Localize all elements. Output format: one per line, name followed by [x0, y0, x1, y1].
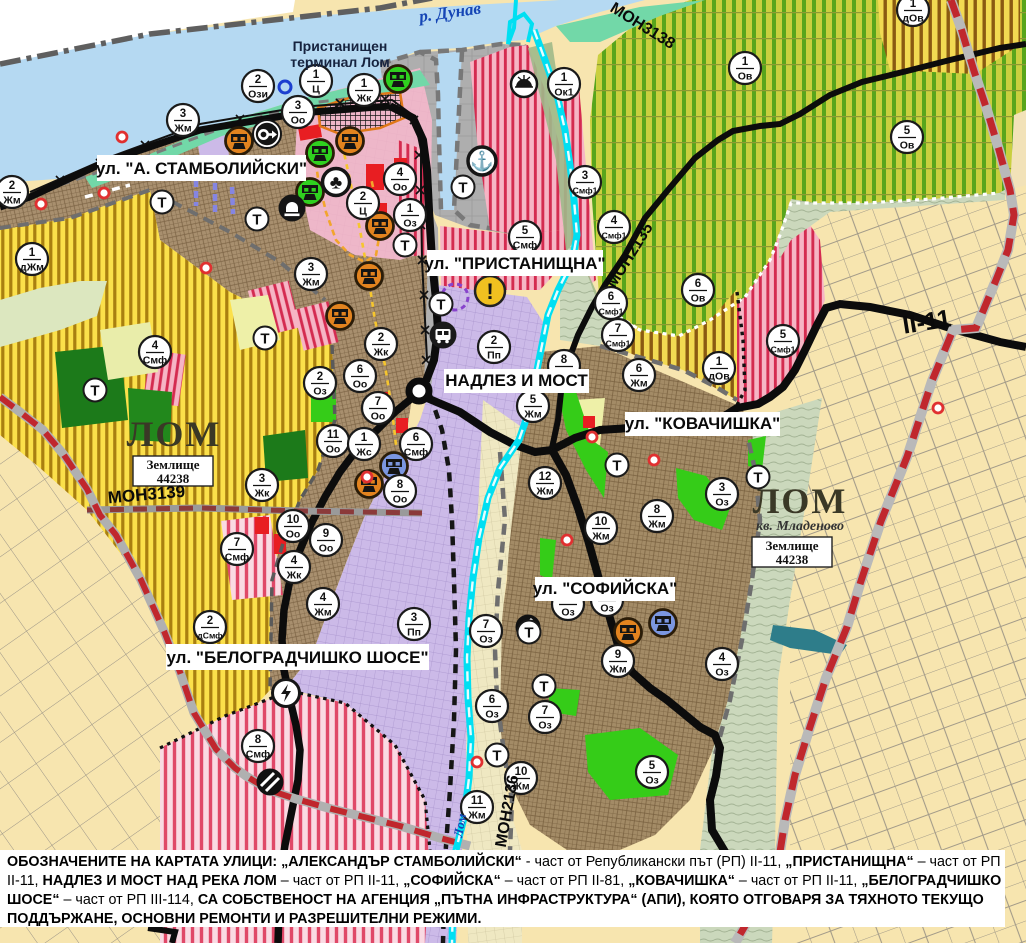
svg-text:Смф1: Смф1 [602, 231, 627, 241]
svg-text:Ов: Ов [691, 293, 706, 305]
svg-text:Т: Т [400, 238, 409, 255]
svg-text:Оз: Оз [645, 775, 658, 787]
svg-text:Жк: Жк [373, 347, 389, 359]
svg-text:дОв: дОв [708, 371, 730, 383]
svg-text:3: 3 [308, 262, 314, 274]
svg-text:2: 2 [491, 335, 497, 347]
svg-text:1: 1 [29, 247, 36, 259]
svg-text:ЛОМ: ЛОМ [753, 481, 848, 521]
svg-text:Оо: Оо [371, 411, 386, 423]
svg-text:1: 1 [407, 203, 414, 215]
svg-text:Оз: Оз [561, 607, 574, 619]
svg-text:Оо: Оо [393, 182, 408, 194]
svg-text:6: 6 [489, 694, 495, 706]
svg-text:Оз: Оз [485, 709, 498, 721]
svg-text:дСмф: дСмф [197, 631, 223, 641]
svg-text:Смф1: Смф1 [573, 186, 598, 196]
svg-text:ул. "А. СТАМБОЛИЙСКИ": ул. "А. СТАМБОЛИЙСКИ" [96, 159, 307, 178]
svg-text:7: 7 [375, 396, 381, 408]
svg-text:Жм: Жм [301, 277, 319, 289]
svg-text:1: 1 [910, 0, 917, 10]
svg-text:8: 8 [654, 504, 661, 516]
svg-text:2: 2 [9, 180, 15, 192]
svg-text:Оз: Оз [715, 667, 728, 679]
svg-text:3: 3 [582, 170, 588, 182]
svg-text:8: 8 [397, 479, 404, 491]
svg-text:5: 5 [530, 394, 537, 406]
svg-text:кв. Младеново: кв. Младеново [756, 519, 844, 534]
svg-text:Жм: Жм [629, 378, 647, 390]
svg-text:2: 2 [207, 615, 213, 627]
svg-text:1: 1 [361, 78, 368, 90]
svg-text:Смф1: Смф1 [606, 339, 631, 349]
svg-text:12: 12 [539, 471, 552, 483]
svg-text:Ок1: Ок1 [554, 87, 573, 99]
svg-text:44238: 44238 [776, 552, 809, 567]
svg-text:3: 3 [295, 100, 301, 112]
svg-text:ЛОМ: ЛОМ [127, 414, 222, 454]
svg-text:5: 5 [780, 329, 787, 341]
svg-text:Оо: Оо [353, 379, 368, 391]
svg-text:Ов: Ов [900, 140, 915, 152]
svg-text:Т: Т [252, 212, 261, 229]
svg-text:Жм: Жм [313, 607, 331, 619]
svg-text:4: 4 [397, 167, 404, 179]
svg-text:Смф: Смф [225, 552, 249, 564]
svg-text:ул. "КОВАЧИШКА": ул. "КОВАЧИШКА" [625, 414, 781, 433]
svg-text:Оо: Оо [319, 543, 334, 555]
svg-text:5: 5 [649, 760, 656, 772]
svg-text:ул. "БЕЛОГРАДЧИШКО ШОСЕ": ул. "БЕЛОГРАДЧИШКО ШОСЕ" [166, 648, 428, 667]
svg-text:Жм: Жм [2, 195, 20, 207]
svg-text:Ц: Ц [312, 84, 320, 96]
svg-text:Оо: Оо [393, 494, 408, 506]
svg-text:Т: Т [260, 331, 269, 348]
svg-text:Жк: Жк [286, 570, 302, 582]
svg-text:2: 2 [378, 332, 384, 344]
svg-text:9: 9 [323, 528, 329, 540]
svg-text:Оз: Оз [715, 497, 728, 509]
svg-text:Жм: Жм [535, 486, 553, 498]
svg-text:Жм: Жм [523, 409, 541, 421]
svg-text:Землище: Землище [146, 457, 199, 472]
svg-text:3: 3 [411, 612, 417, 624]
svg-text:Смф1: Смф1 [771, 345, 796, 355]
svg-text:Жм: Жм [467, 810, 485, 822]
svg-text:Оо: Оо [326, 444, 341, 456]
svg-text:4: 4 [719, 652, 726, 664]
svg-text:5: 5 [522, 225, 529, 237]
svg-text:1: 1 [716, 356, 723, 368]
svg-text:3: 3 [180, 108, 186, 120]
svg-text:Т: Т [612, 458, 621, 475]
svg-text:Ози: Ози [248, 89, 268, 101]
svg-text:Жк: Жк [356, 93, 372, 105]
svg-text:Т: Т [492, 748, 501, 765]
svg-text:Пп: Пп [407, 627, 421, 639]
svg-text:Т: Т [90, 383, 99, 400]
svg-text:Т: Т [157, 195, 166, 212]
svg-text:11: 11 [327, 429, 340, 441]
svg-text:10: 10 [287, 514, 300, 526]
svg-text:6: 6 [608, 291, 614, 303]
svg-text:7: 7 [234, 537, 240, 549]
svg-text:Смф: Смф [143, 355, 167, 367]
svg-text:7: 7 [542, 705, 548, 717]
svg-text:Пп: Пп [487, 350, 501, 362]
svg-text:НАДЛЕЗ И МОСТ: НАДЛЕЗ И МОСТ [445, 371, 588, 390]
svg-text:⚓: ⚓ [470, 150, 494, 173]
svg-text:дОв: дОв [902, 13, 924, 25]
svg-text:Жм: Жм [173, 123, 191, 135]
svg-text:Смф: Смф [246, 749, 270, 761]
svg-text:♣: ♣ [330, 173, 342, 194]
svg-text:Пристанищен: Пристанищен [293, 38, 388, 54]
svg-text:1: 1 [561, 72, 568, 84]
svg-text:9: 9 [615, 649, 621, 661]
svg-text:Жм: Жм [608, 664, 626, 676]
svg-text:3: 3 [719, 482, 725, 494]
svg-text:Ов: Ов [738, 71, 753, 83]
svg-text:4: 4 [291, 555, 298, 567]
svg-text:Смф: Смф [404, 447, 428, 459]
svg-text:7: 7 [615, 323, 621, 335]
svg-text:6: 6 [413, 432, 419, 444]
svg-text:Смф: Смф [513, 240, 537, 252]
svg-text:4: 4 [152, 340, 159, 352]
svg-text:Жс: Жс [355, 447, 371, 459]
svg-text:Жм: Жм [647, 519, 665, 531]
svg-text:1: 1 [361, 432, 368, 444]
svg-text:Оз: Оз [313, 386, 326, 398]
svg-text:4: 4 [611, 215, 618, 227]
svg-text:2: 2 [255, 74, 261, 86]
svg-text:5: 5 [904, 125, 911, 137]
svg-text:Т: Т [539, 679, 548, 696]
svg-text:Смф1: Смф1 [599, 307, 624, 317]
svg-text:Оз: Оз [479, 634, 492, 646]
svg-text:2: 2 [317, 371, 323, 383]
svg-text:Ц: Ц [359, 206, 367, 218]
svg-text:Жм: Жм [591, 531, 609, 543]
svg-text:Оо: Оо [286, 529, 301, 541]
svg-text:4: 4 [320, 592, 327, 604]
svg-text:Т: Т [524, 625, 533, 642]
svg-text:Т: Т [436, 297, 445, 314]
svg-text:Жк: Жк [254, 488, 270, 500]
svg-text:ул. "ПРИСТАНИЩНА": ул. "ПРИСТАНИЩНА" [424, 254, 605, 273]
svg-text:1: 1 [313, 69, 320, 81]
svg-text:!: ! [486, 279, 493, 304]
svg-text:2: 2 [360, 191, 366, 203]
svg-text:Оо: Оо [291, 115, 306, 127]
svg-text:Оз: Оз [538, 720, 551, 732]
svg-text:1: 1 [742, 56, 749, 68]
svg-text:ул. "СОФИЙСКА": ул. "СОФИЙСКА" [533, 579, 678, 598]
svg-text:6: 6 [636, 363, 642, 375]
svg-text:Оз: Оз [403, 218, 416, 230]
svg-text:10: 10 [595, 516, 608, 528]
svg-text:Землище: Землище [765, 538, 818, 553]
svg-text:терминал Лом: терминал Лом [290, 54, 390, 70]
svg-text:3: 3 [259, 473, 265, 485]
svg-text:6: 6 [357, 364, 363, 376]
svg-text:7: 7 [483, 619, 489, 631]
svg-text:дЖм: дЖм [20, 262, 44, 274]
svg-text:8: 8 [255, 734, 262, 746]
svg-text:Т: Т [458, 180, 467, 197]
svg-text:8: 8 [561, 354, 568, 366]
svg-text:Оз: Оз [600, 603, 613, 615]
svg-text:6: 6 [695, 278, 701, 290]
svg-text:11: 11 [471, 795, 484, 807]
